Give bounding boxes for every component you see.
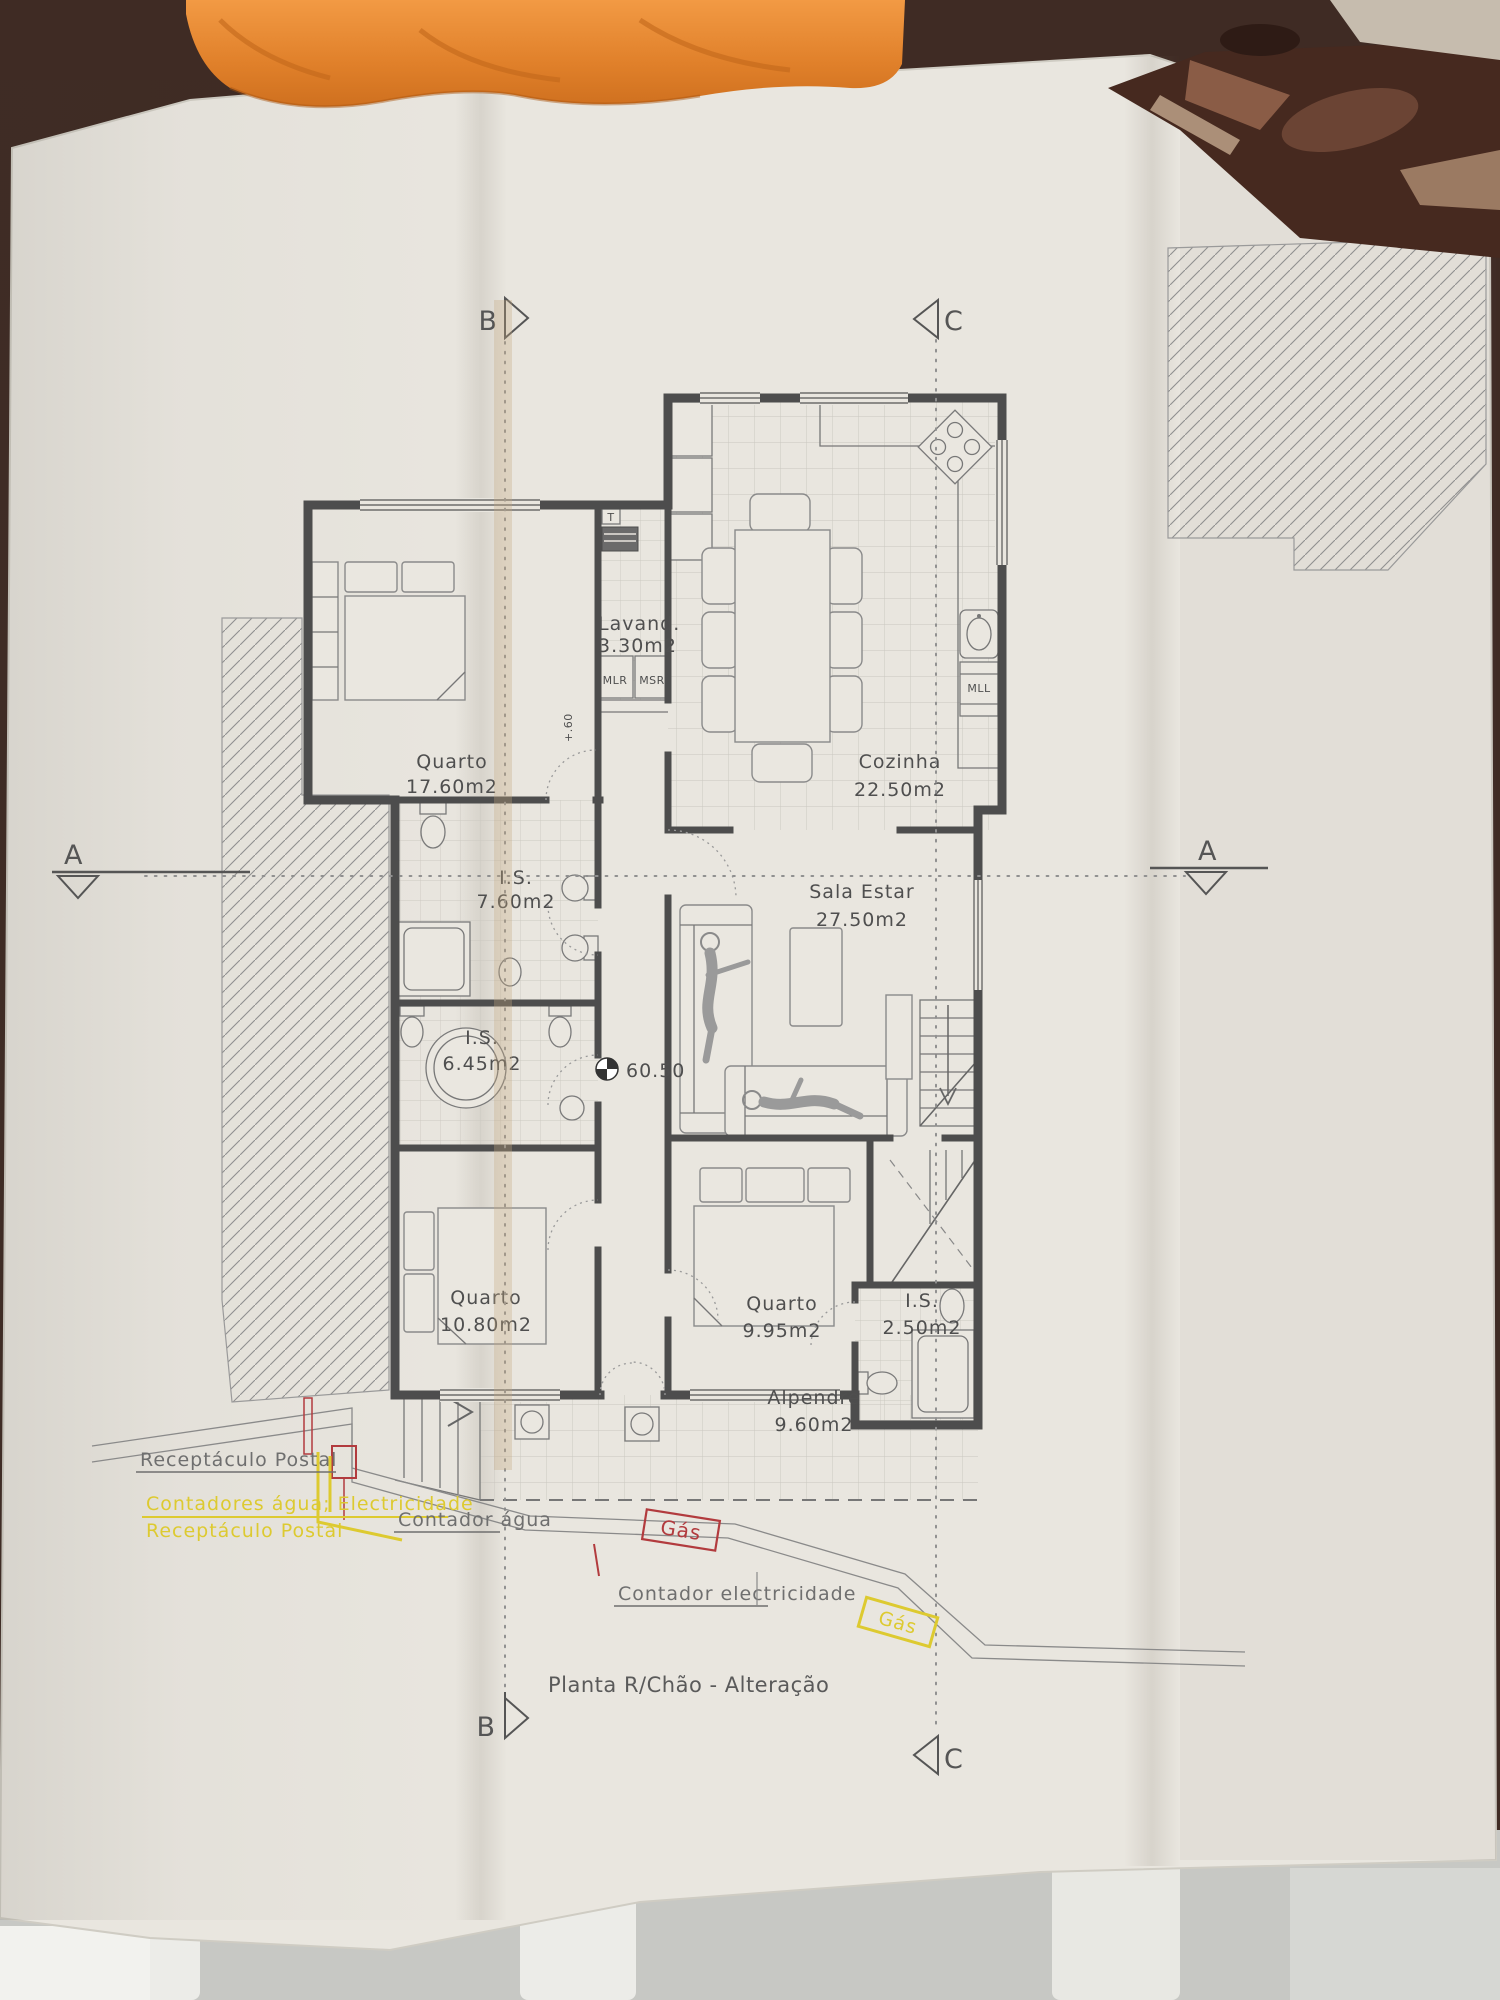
wardrobe-icon xyxy=(312,562,338,700)
svg-text:B: B xyxy=(476,1712,496,1743)
svg-text:Quarto: Quarto xyxy=(746,1293,818,1315)
benchmark-icon xyxy=(596,1058,618,1080)
toilet-icon xyxy=(858,1372,897,1394)
svg-text:9.95m2: 9.95m2 xyxy=(743,1320,822,1342)
toilet-icon xyxy=(400,1006,424,1047)
kitchen-cabinet xyxy=(670,458,712,512)
chair-icon xyxy=(826,676,862,732)
annotation-contador-agua: Contador água xyxy=(394,1509,552,1532)
svg-text:17.60m2: 17.60m2 xyxy=(406,776,498,798)
svg-text:3.30m2: 3.30m2 xyxy=(598,635,677,657)
svg-text:Contador água: Contador água xyxy=(398,1509,552,1531)
svg-text:27.50m2: 27.50m2 xyxy=(816,909,908,931)
svg-text:Contador electricidade: Contador electricidade xyxy=(618,1583,856,1605)
photo-of-floor-plan: +.60 xyxy=(0,0,1500,2000)
svg-text:Cozinha: Cozinha xyxy=(859,751,942,773)
toilet-icon xyxy=(420,802,446,848)
porch-column xyxy=(625,1407,659,1441)
svg-text:9.60m2: 9.60m2 xyxy=(775,1414,854,1436)
porch-column xyxy=(515,1405,549,1439)
svg-text:Receptáculo Postal: Receptáculo Postal xyxy=(140,1449,337,1471)
svg-text:10.80m2: 10.80m2 xyxy=(440,1314,532,1336)
bedroom1-furniture xyxy=(312,562,465,700)
drawing-title: Planta R/Chão - Alteração xyxy=(548,1673,829,1697)
chair-icon xyxy=(826,612,862,668)
step-level-label: +.60 xyxy=(562,713,575,742)
washbasin-icon xyxy=(562,875,588,901)
water-heater-label: T xyxy=(606,511,614,524)
annotation-receptaculo-postal: Receptáculo Postal xyxy=(136,1449,337,1472)
svg-text:Quarto: Quarto xyxy=(416,751,488,773)
shower-icon xyxy=(912,1330,974,1418)
svg-text:Sala Estar: Sala Estar xyxy=(809,881,914,903)
chair-icon xyxy=(752,744,812,782)
chair-icon xyxy=(826,548,862,604)
svg-text:I.S.: I.S. xyxy=(465,1027,499,1049)
svg-text:22.50m2: 22.50m2 xyxy=(854,779,946,801)
window-icon xyxy=(360,498,540,512)
shower-icon xyxy=(398,922,470,996)
dining-table-icon xyxy=(735,530,830,742)
svg-text:A: A xyxy=(1198,836,1217,867)
svg-text:C: C xyxy=(944,1744,964,1775)
svg-text:2.50m2: 2.50m2 xyxy=(883,1317,962,1339)
chair-icon xyxy=(702,612,738,668)
washbasin-icon xyxy=(560,1096,584,1120)
chair-icon xyxy=(750,494,810,532)
svg-text:Alpendre: Alpendre xyxy=(767,1387,860,1409)
chair-icon xyxy=(702,548,738,604)
dishwasher-label: MLL xyxy=(967,682,991,695)
svg-text:Lavand.: Lavand. xyxy=(598,613,680,635)
window-icon xyxy=(800,391,908,405)
washbasin-icon xyxy=(562,935,588,961)
svg-text:7.60m2: 7.60m2 xyxy=(477,891,556,913)
svg-text:C: C xyxy=(944,306,964,337)
cabinet-icon xyxy=(886,995,912,1079)
bidet-icon xyxy=(549,1006,571,1047)
benchmark-level-label: 60.50 xyxy=(626,1060,685,1082)
svg-text:A: A xyxy=(64,840,83,871)
window-icon xyxy=(995,440,1009,565)
kitchen-cabinet xyxy=(670,402,712,456)
sink-icon xyxy=(960,610,998,658)
bed-icon xyxy=(345,562,465,700)
coffee-table-icon xyxy=(790,928,842,1026)
fold-stain-stripe xyxy=(494,300,512,1470)
svg-text:Receptáculo Postal: Receptáculo Postal xyxy=(146,1520,343,1542)
chair-icon xyxy=(702,676,738,732)
washing-machine-label: MLR xyxy=(603,674,628,687)
svg-text:I.S.: I.S. xyxy=(905,1290,939,1312)
dryer-label: MSR xyxy=(639,674,665,687)
window-icon xyxy=(971,880,985,990)
window-icon xyxy=(700,391,760,405)
